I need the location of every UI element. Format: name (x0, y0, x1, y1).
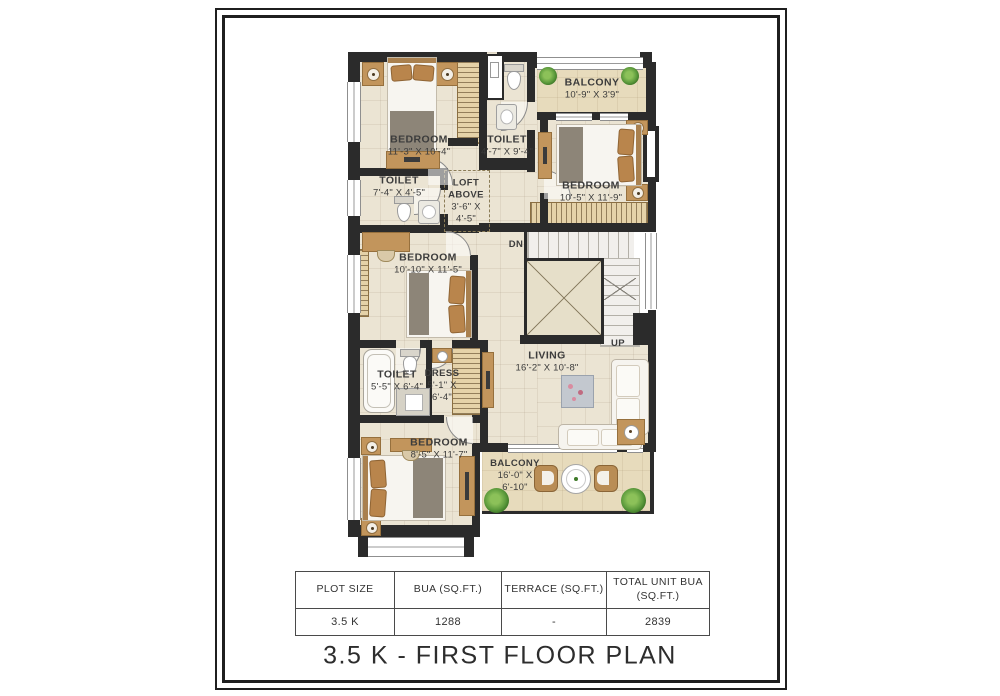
label-toilet-1: TOILET 7'-4" X 4'-5" (373, 175, 425, 200)
round-table (561, 464, 591, 494)
wall-stairs-bottom (520, 335, 604, 344)
washbasin (418, 200, 440, 224)
label-dress: DRESS 5'-1" X 6'-4" (422, 368, 462, 404)
wall-right-living (648, 310, 656, 450)
room-dims: 3'-6" X 4'-5" (443, 201, 489, 225)
label-bedroom-1: BEDROOM 11'-3" X 10'-4" (388, 134, 450, 159)
plant (621, 488, 646, 513)
label-toilet-2: TOILET 4'-7" X 9'-4" (481, 134, 533, 159)
room-name: TOILET (481, 134, 533, 147)
balcony-bottom-rail-right (650, 450, 654, 513)
room-name: LOFT ABOVE (443, 177, 489, 201)
nightstand (436, 62, 458, 86)
wall-bedroom-4-top (348, 415, 444, 423)
label-bedroom-4: BEDROOM 8'-5" X 11'-7" (410, 437, 468, 462)
room-dims: 11'-3" X 10'-4" (388, 147, 450, 159)
room-name: BEDROOM (394, 252, 462, 265)
window-bedroom-2-b (600, 113, 628, 121)
header-terrace: TERRACE (SQ.FT.) (502, 572, 607, 609)
wall-living-balcony-a (480, 443, 508, 452)
wall-toilet2-bottom (483, 158, 535, 170)
room-name: TOILET (371, 369, 423, 382)
balcony-chair (594, 465, 618, 492)
label-stairs-up: UP (611, 338, 625, 350)
wall-hall-top (448, 138, 478, 146)
wall-mid-horizontal (479, 223, 656, 232)
label-balcony-top: BALCONY 10'-9" X 3'9" (565, 77, 620, 102)
room-name: BALCONY (488, 458, 542, 470)
room-dims: 5'-5" X 6'-4" (371, 382, 423, 394)
room-name: TOILET (373, 175, 425, 188)
stairs-dn-text: DN (509, 239, 524, 251)
header-total-unit-bua: TOTAL UNIT BUA (SQ.FT.) (607, 572, 710, 609)
wall-stairs-corner (633, 313, 648, 345)
room-dims: 5'-1" X 6'-4" (422, 380, 462, 404)
study-desk (362, 232, 410, 252)
wardrobe-bedroom-1 (457, 60, 481, 144)
duct-shaft-inner (490, 62, 499, 78)
label-toilet-3: TOILET 5'-5" X 6'-4" (371, 369, 423, 394)
room-dims: 4'-7" X 9'-4" (481, 147, 533, 159)
header-bua: BUA (SQ.FT.) (395, 572, 502, 609)
value-total-unit-bua: 2839 (607, 609, 710, 636)
console-hall (538, 132, 552, 179)
bay-post-right (464, 525, 474, 557)
wall-balcony-top-bedroom (537, 112, 656, 120)
wall-toilet3-top-a (348, 340, 396, 348)
bed-bedroom-4 (362, 455, 446, 521)
room-name: BEDROOM (388, 134, 450, 147)
room-dims: 10'-5" X 11'-9" (560, 193, 622, 205)
label-loft-above: LOFT ABOVE 3'-6" X 4'-5" (443, 177, 489, 225)
tv-unit (459, 456, 475, 516)
console-living (482, 352, 494, 408)
header-plot-size: PLOT SIZE (296, 572, 395, 609)
window-stair-landing (645, 233, 657, 309)
room-dims: 16'-2" X 10'-8" (515, 363, 578, 375)
nightstand (626, 184, 648, 201)
nightstand (361, 437, 381, 455)
room-dims: 8'-5" X 11'-7" (410, 450, 468, 462)
window-bedroom-4 (347, 458, 361, 520)
stairs-direction-mark (604, 278, 636, 300)
plant (621, 67, 639, 85)
room-name: BEDROOM (410, 437, 468, 450)
window-bedroom-3 (347, 255, 361, 313)
wall-stub-bedroom-4 (472, 415, 480, 423)
page-title: 3.5 K - FIRST FLOOR PLAN (323, 642, 677, 671)
dress-vanity (432, 348, 452, 363)
box-window-glass (647, 131, 655, 177)
table-header-row: PLOT SIZE BUA (SQ.FT.) TERRACE (SQ.FT.) … (296, 572, 710, 609)
table-value-row: 3.5 K 1288 - 2839 (296, 609, 710, 636)
bed-bedroom-2 (556, 124, 642, 186)
value-bua: 1288 (395, 609, 502, 636)
value-terrace: - (502, 609, 607, 636)
wall-right-balcony-top (646, 62, 656, 120)
washbasin (496, 104, 517, 130)
room-dims: 7'-4" X 4'-5" (373, 188, 425, 200)
room-dims: 16'-0" X 6'-10" (488, 470, 542, 494)
label-bedroom-2: BEDROOM 10'-5" X 11'-9" (560, 180, 622, 205)
plant (539, 67, 557, 85)
room-dims: 10'-9" X 3'9" (565, 90, 620, 102)
stair-void (524, 258, 604, 338)
floor-plan-page: BEDROOM 11'-3" X 10'-4" TOILET 7'-4" X 4… (0, 0, 1000, 696)
bay-window-bedroom-4 (368, 537, 464, 557)
room-name: DRESS (422, 368, 462, 380)
room-dims: 10'-10" X 11'-5" (394, 265, 462, 277)
label-bedroom-3: BEDROOM 10'-10" X 11'-5" (394, 252, 462, 277)
window-bedroom-1 (347, 82, 361, 142)
window-bedroom-2-a (556, 113, 592, 121)
value-plot-size: 3.5 K (296, 609, 395, 636)
side-table (617, 419, 645, 445)
room-name: LIVING (515, 350, 578, 363)
room-name: BALCONY (565, 77, 620, 90)
specification-table: PLOT SIZE BUA (SQ.FT.) TERRACE (SQ.FT.) … (295, 571, 710, 636)
wall-stairs-left (524, 230, 527, 262)
window-toilet-1 (347, 180, 361, 216)
nightstand (362, 62, 384, 86)
wall-toilet3-top-b (420, 340, 432, 348)
label-stairs-dn: DN (509, 239, 524, 251)
label-living: LIVING 16'-2" X 10'-8" (515, 350, 578, 375)
stairs-up-text: UP (611, 338, 625, 350)
label-balcony-bottom: BALCONY 16'-0" X 6'-10" (488, 458, 542, 494)
room-name: BEDROOM (560, 180, 622, 193)
bed-bedroom-3 (406, 270, 472, 338)
rug (561, 375, 594, 408)
